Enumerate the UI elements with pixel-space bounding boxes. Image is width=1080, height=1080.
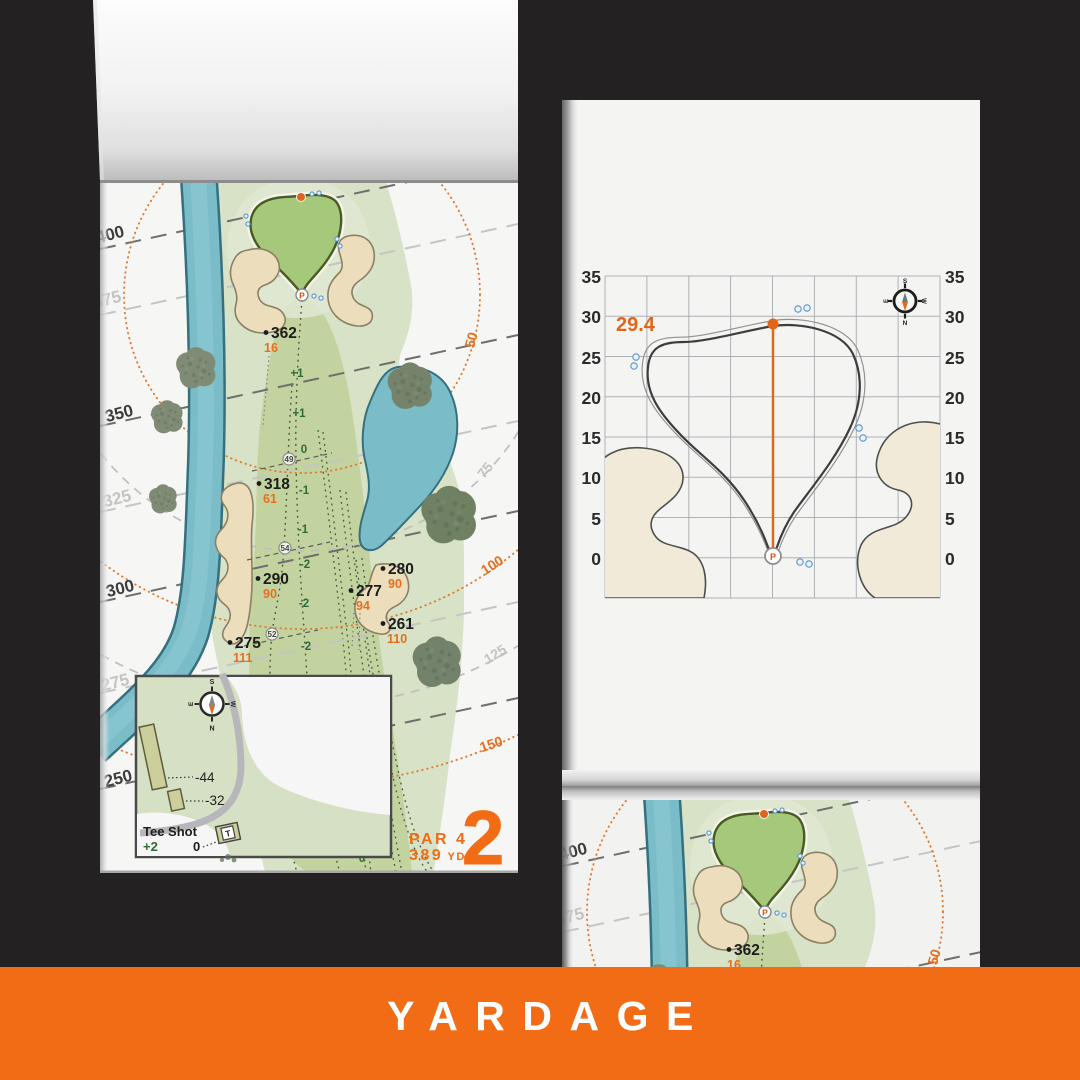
svg-text:W: W <box>920 298 926 304</box>
svg-text:20: 20 <box>945 388 965 408</box>
svg-text:20: 20 <box>582 388 602 408</box>
svg-text:S: S <box>903 278 908 285</box>
svg-text:0: 0 <box>945 549 955 569</box>
svg-text:0: 0 <box>591 549 601 569</box>
svg-text:25: 25 <box>582 348 602 368</box>
svg-text:10: 10 <box>582 468 602 488</box>
svg-text:5: 5 <box>945 509 955 529</box>
svg-text:P: P <box>770 552 776 562</box>
svg-text:5: 5 <box>591 509 601 529</box>
svg-text:10: 10 <box>945 468 965 488</box>
svg-text:30: 30 <box>582 307 602 327</box>
svg-text:35: 35 <box>582 267 602 287</box>
svg-text:30: 30 <box>945 307 965 327</box>
svg-text:N: N <box>903 320 908 327</box>
svg-text:25: 25 <box>945 348 965 368</box>
svg-text:E: E <box>884 299 890 303</box>
svg-text:YARDAGE: YARDAGE <box>387 993 711 1039</box>
svg-text:15: 15 <box>582 428 602 448</box>
svg-text:15: 15 <box>945 428 965 448</box>
svg-text:35: 35 <box>945 267 965 287</box>
svg-text:29.4: 29.4 <box>616 314 656 336</box>
